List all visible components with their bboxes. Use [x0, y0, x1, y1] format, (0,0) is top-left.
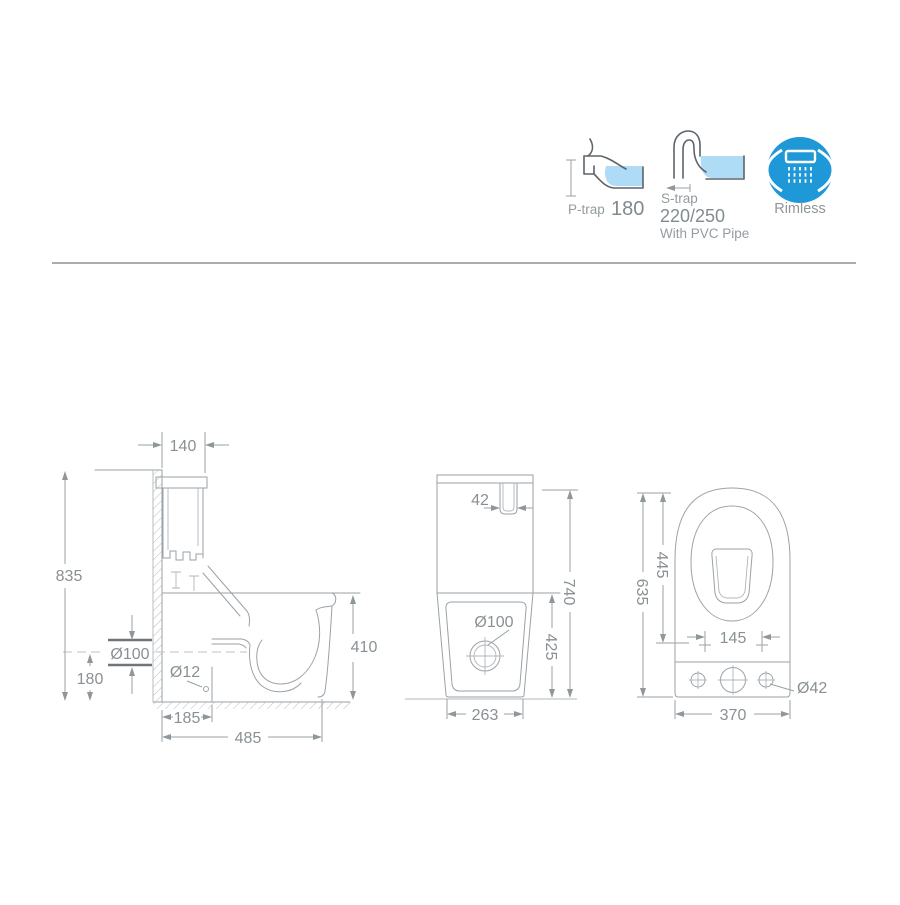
dim-rim-height-front: 425: [542, 594, 559, 698]
dim-button-slot: 42: [471, 492, 533, 511]
svg-text:485: 485: [235, 730, 262, 747]
svg-text:Ø100: Ø100: [474, 614, 513, 631]
svg-text:Ø100: Ø100: [110, 646, 149, 663]
dim-outlet-height: 180: [77, 654, 104, 701]
svg-text:Ø42: Ø42: [797, 680, 827, 697]
svg-text:445: 445: [653, 552, 670, 579]
svg-text:145: 145: [720, 630, 747, 647]
s-trap-note: With PVC Pipe: [660, 226, 749, 241]
fixing-holes: [689, 665, 775, 695]
dim-width: 370: [675, 700, 790, 724]
spec-sheet-page: P-trap 180 S-trap 220/250 With PVC Pipe …: [0, 0, 900, 900]
p-trap-label: P-trap: [568, 202, 605, 217]
s-trap-water: [701, 156, 744, 178]
dim-rim-height: 410: [350, 595, 377, 700]
dim-outlet-diameter-front: Ø100: [474, 614, 513, 645]
floor-hatch: [153, 702, 350, 709]
p-trap-water: [605, 166, 643, 186]
s-trap-label: S-trap: [661, 191, 698, 206]
technical-drawing-canvas: P-trap 180 S-trap 220/250 With PVC Pipe …: [0, 0, 900, 900]
svg-text:425: 425: [542, 634, 559, 661]
svg-text:835: 835: [56, 568, 83, 585]
front-view-drawing: 42 Ø100 740 425: [405, 475, 578, 724]
svg-text:180: 180: [77, 671, 104, 688]
seat-opening: [691, 506, 773, 621]
dim-outlet-diameter: Ø100: [108, 615, 152, 694]
svg-text:263: 263: [472, 707, 499, 724]
svg-text:Ø12: Ø12: [170, 664, 200, 681]
svg-text:635: 635: [633, 579, 650, 606]
s-trap-icon: S-trap 220/250 With PVC Pipe: [660, 131, 749, 241]
dim-total-height: 835: [56, 471, 83, 701]
dim-tank-depth: 140: [138, 432, 229, 473]
side-view-drawing: 140 835 Ø100 180: [56, 432, 378, 747]
s-trap-value: 220/250: [660, 206, 725, 226]
rimless-icon: Rimless: [767, 137, 833, 217]
svg-text:370: 370: [720, 707, 747, 724]
dim-fixing-hole-diameter: Ø42: [770, 680, 827, 697]
dim-total-height-front: 740: [542, 490, 578, 698]
svg-text:410: 410: [351, 639, 378, 656]
dim-fixing-hole: Ø12: [170, 664, 202, 687]
p-trap-icon: P-trap 180: [566, 139, 644, 220]
wall-hatch: [153, 470, 162, 702]
fixing-hole: [204, 687, 209, 692]
top-view-drawing: 145 635 445: [633, 488, 827, 724]
svg-text:140: 140: [170, 438, 197, 455]
dim-base-width: 263: [447, 699, 523, 724]
svg-text:740: 740: [560, 579, 577, 606]
dim-seat-hole-spacing: 145: [687, 630, 780, 652]
rimless-label: Rimless: [774, 201, 826, 217]
p-trap-value: 180: [611, 198, 644, 220]
dim-total-length: 635: [633, 493, 673, 697]
tank-lid: [156, 477, 207, 488]
svg-text:185: 185: [174, 710, 201, 727]
svg-text:42: 42: [471, 492, 489, 509]
